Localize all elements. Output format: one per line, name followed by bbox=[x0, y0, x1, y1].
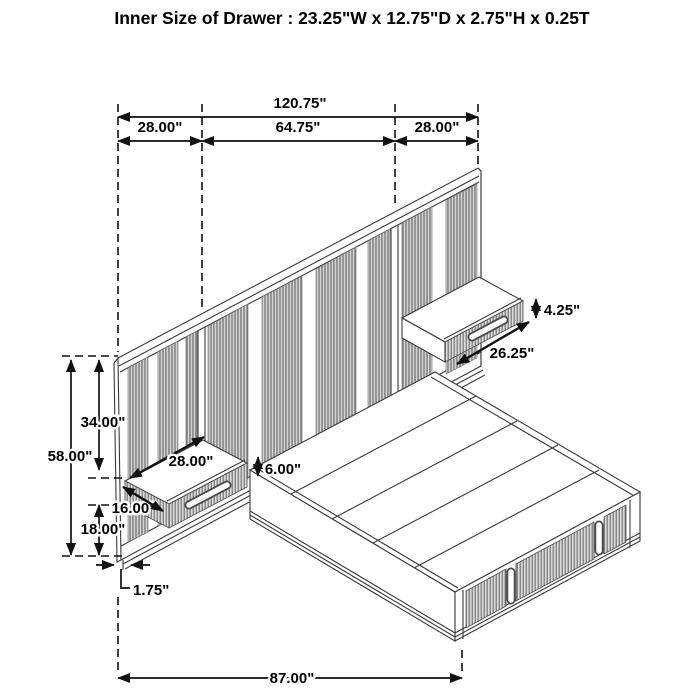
dim-right-nightstand-width: 26.25" bbox=[490, 345, 535, 362]
bed-dimension-diagram-page: Inner Size of Drawer : 23.25"W x 12.75"D… bbox=[0, 0, 700, 700]
dim-left-section: 28.00" bbox=[138, 119, 183, 136]
dim-base-inset: 1.75" bbox=[133, 582, 169, 599]
dim-nightstand-clearance: 18.00" bbox=[81, 521, 126, 538]
dim-overall-width: 120.75" bbox=[274, 95, 327, 112]
dim-right-nightstand-height: 4.25" bbox=[544, 302, 580, 319]
dim-bed-length: 87.00" bbox=[270, 670, 315, 687]
bed-dimension-diagram: Inner Size of Drawer : 23.25"W x 12.75"D… bbox=[0, 0, 700, 700]
dim-headboard-height: 58.00" bbox=[48, 448, 93, 465]
dim-left-nightstand-height: 6.00" bbox=[265, 461, 301, 478]
page-title: Inner Size of Drawer : 23.25"W x 12.75"D… bbox=[114, 8, 590, 28]
dim-right-section: 28.00" bbox=[415, 119, 460, 136]
dim-panel-above-nightstand: 34.00" bbox=[81, 414, 126, 431]
dim-center-section: 64.75" bbox=[276, 119, 321, 136]
dim-left-nightstand-width: 28.00" bbox=[169, 453, 214, 470]
